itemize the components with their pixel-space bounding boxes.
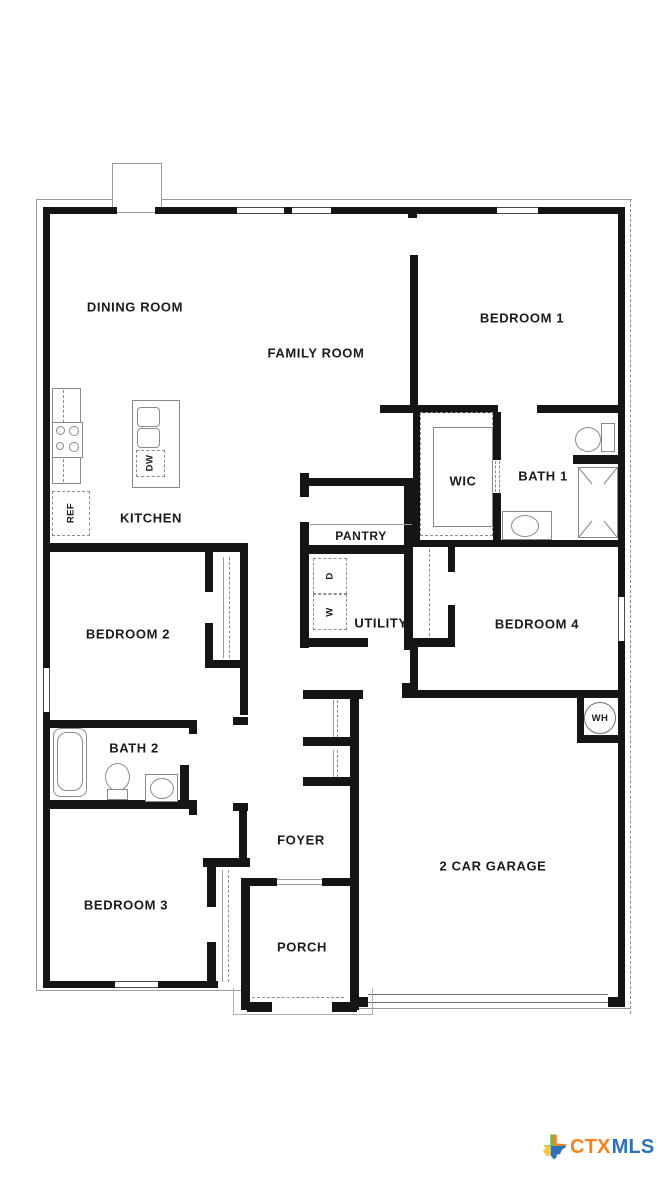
wall (284, 207, 292, 214)
wall (618, 641, 625, 1007)
room-label-porch: PORCH (277, 940, 327, 955)
sink (511, 515, 539, 537)
door-dash (495, 461, 496, 492)
wall (448, 547, 455, 572)
texas-state-icon (541, 1134, 567, 1160)
door-dash (499, 461, 500, 492)
pantry-shelf (310, 524, 412, 525)
wall (448, 605, 455, 638)
wall (538, 207, 625, 214)
wall (239, 803, 247, 860)
shower (578, 467, 618, 538)
toilet-base (107, 789, 128, 800)
ctxmls-logo: CTXMLS (541, 1134, 654, 1160)
wall (205, 552, 213, 592)
sink-basin (137, 407, 160, 427)
wall (205, 660, 245, 668)
closet-rod (228, 870, 229, 982)
room-label-bedroom-3: BEDROOM 3 (84, 898, 168, 913)
room-label-bath-2: BATH 2 (109, 741, 159, 756)
wall (233, 717, 248, 725)
room-label-dining-room: DINING ROOM (87, 300, 183, 315)
bump-out-line (117, 212, 155, 213)
wall (493, 493, 501, 547)
wall (189, 720, 197, 734)
window (43, 668, 50, 712)
room-label-kitchen: KITCHEN (120, 511, 182, 526)
room-label-bedroom-4: BEDROOM 4 (495, 617, 579, 632)
porch-dash-line (252, 997, 344, 998)
slab-line (358, 1008, 631, 1009)
wall (207, 942, 216, 985)
logo-text-mls: MLS (612, 1137, 655, 1157)
wall (410, 255, 418, 413)
wall (300, 638, 368, 647)
floor-plan: WH DINING ROOM FAMILY ROOM BEDROOM 1 KIT… (0, 0, 664, 1182)
wall (408, 207, 417, 218)
logo-text-ctx: CTX (570, 1137, 611, 1157)
closet-shelf (337, 750, 338, 777)
foundation-line (36, 199, 37, 991)
window (497, 207, 538, 214)
dishwasher-label: DW (145, 455, 156, 472)
wall (402, 690, 618, 698)
room-label-wic: WIC (449, 474, 476, 489)
window (115, 981, 158, 988)
water-heater: WH (584, 702, 616, 734)
room-label-bedroom-2: BEDROOM 2 (86, 627, 170, 642)
room-label-bedroom-1: BEDROOM 1 (480, 311, 564, 326)
closet-shelf (333, 700, 334, 737)
wall (207, 860, 216, 907)
burner (56, 426, 65, 435)
closet-shelf (333, 750, 334, 777)
wall (573, 455, 618, 464)
room-label-utility: UTILITY (354, 616, 407, 631)
closet-shelf (337, 700, 338, 737)
wall (189, 800, 197, 815)
wall (43, 543, 248, 552)
wall (413, 405, 420, 547)
burner (69, 442, 79, 452)
refrigerator-label: REF (66, 503, 77, 523)
wall (155, 207, 237, 214)
wall (43, 981, 115, 988)
garage-door (368, 994, 608, 1003)
wall (43, 712, 50, 988)
front-door (277, 884, 322, 885)
wall (43, 720, 197, 728)
front-door (277, 879, 322, 880)
room-label-garage: 2 CAR GARAGE (440, 859, 547, 874)
wall (45, 207, 117, 214)
burner (69, 426, 79, 436)
room-label-foyer: FOYER (277, 833, 325, 848)
window (292, 207, 331, 214)
wall (300, 522, 309, 648)
toilet-tank (601, 423, 615, 452)
room-label-bath-1: BATH 1 (518, 469, 568, 484)
window (618, 597, 625, 641)
closet-rod (229, 557, 230, 658)
water-heater-label: WH (592, 713, 609, 724)
washer-label: W (325, 607, 336, 616)
wall (410, 647, 418, 694)
wall (247, 878, 277, 886)
wall (322, 878, 358, 886)
toilet (575, 427, 601, 452)
wall (413, 540, 618, 547)
sink (150, 778, 174, 799)
room-label-pantry: PANTRY (335, 529, 387, 543)
wall (537, 405, 618, 413)
dryer-label: D (325, 572, 336, 579)
wall (493, 412, 501, 460)
wall (303, 737, 353, 746)
wall (402, 683, 410, 691)
burner (56, 442, 64, 450)
wall (408, 638, 455, 647)
wall (300, 478, 412, 486)
wall (43, 207, 50, 668)
wall (577, 735, 618, 743)
foundation-line (630, 199, 631, 1014)
closet-rod (222, 870, 223, 982)
wall (608, 997, 625, 1007)
sink-basin (137, 428, 160, 448)
bump-out (112, 163, 162, 208)
toilet (105, 763, 130, 791)
wall (240, 543, 248, 715)
door-dash (429, 549, 430, 636)
closet-rod (223, 557, 224, 658)
window (237, 207, 284, 214)
wall (618, 207, 625, 597)
wall (350, 690, 359, 1010)
wall (303, 777, 353, 786)
foundation-line (36, 990, 242, 991)
wall (308, 545, 412, 554)
room-label-family-room: FAMILY ROOM (268, 346, 365, 361)
bathtub-inner (57, 732, 83, 791)
porch-steps (233, 988, 373, 1015)
